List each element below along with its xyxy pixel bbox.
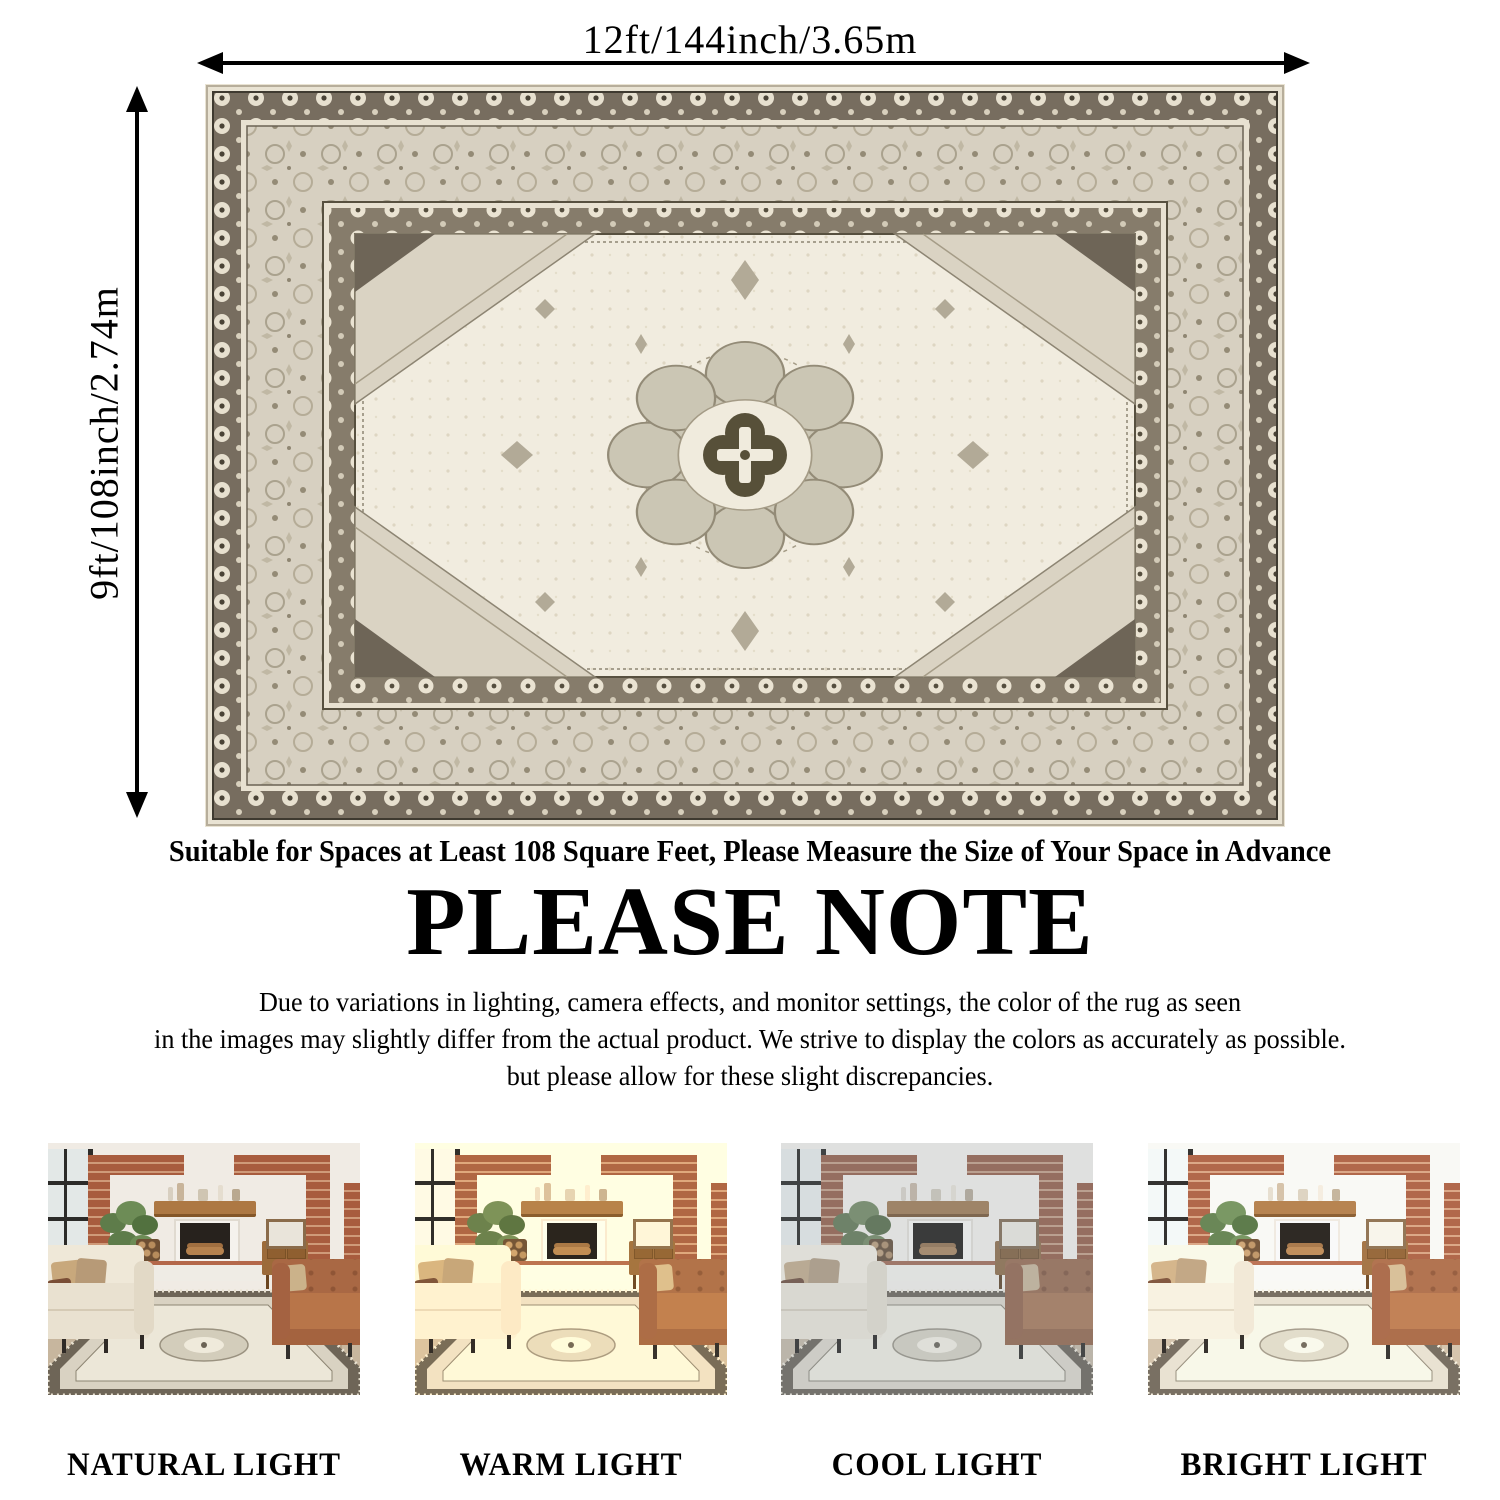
arrow-right-head-icon (1284, 52, 1310, 74)
disclaimer-line-1: Due to variations in lighting, camera ef… (23, 984, 1478, 1021)
photo-label-natural: NATURAL LIGHT (56, 1447, 352, 1484)
photo-card-natural: NATURAL LIGHT (48, 1143, 360, 1484)
lighting-photo-natural (48, 1143, 360, 1395)
product-infographic: 12ft/144inch/3.65m 9ft/108inch/2.74m (0, 0, 1500, 1500)
color-disclaimer-paragraph: Due to variations in lighting, camera ef… (23, 984, 1478, 1095)
please-note-heading: PLEASE NOTE (0, 868, 1500, 977)
living-room-scene (1148, 1143, 1460, 1395)
suitable-space-note: Suitable for Spaces at Least 108 Square … (60, 833, 1440, 869)
lighting-tint-overlay (48, 1143, 360, 1395)
disclaimer-line-3: but please allow for these slight discre… (23, 1058, 1478, 1095)
photo-card-cool: COOL LIGHT (781, 1143, 1093, 1484)
lighting-photo-warm (415, 1143, 727, 1395)
rug-illustration (205, 84, 1285, 827)
living-room-scene (781, 1143, 1093, 1395)
lighting-photo-bright (1148, 1143, 1460, 1395)
arrow-shaft (135, 104, 139, 800)
photo-label-warm: WARM LIGHT (422, 1447, 718, 1484)
photo-label-cool: COOL LIGHT (789, 1447, 1085, 1484)
disclaimer-line-2: in the images may slightly differ from t… (23, 1021, 1478, 1058)
arrow-down-head-icon (126, 792, 148, 818)
lighting-tint-overlay (1148, 1143, 1460, 1395)
lighting-tint-overlay (781, 1143, 1093, 1395)
lighting-tint-overlay (415, 1143, 727, 1395)
living-room-scene (415, 1143, 727, 1395)
height-dimension-arrow (125, 86, 149, 818)
width-dimension-arrow (197, 51, 1310, 75)
photo-card-bright: BRIGHT LIGHT (1148, 1143, 1460, 1484)
lighting-photos-row: NATURAL LIGHT (48, 1143, 1460, 1484)
living-room-scene (48, 1143, 360, 1395)
rug-product-image (205, 84, 1285, 827)
photo-card-warm: WARM LIGHT (415, 1143, 727, 1484)
lighting-photo-cool (781, 1143, 1093, 1395)
rug-height-label: 9ft/108inch/2.74m (81, 286, 128, 600)
photo-label-bright: BRIGHT LIGHT (1156, 1447, 1452, 1484)
arrow-shaft (215, 61, 1292, 65)
